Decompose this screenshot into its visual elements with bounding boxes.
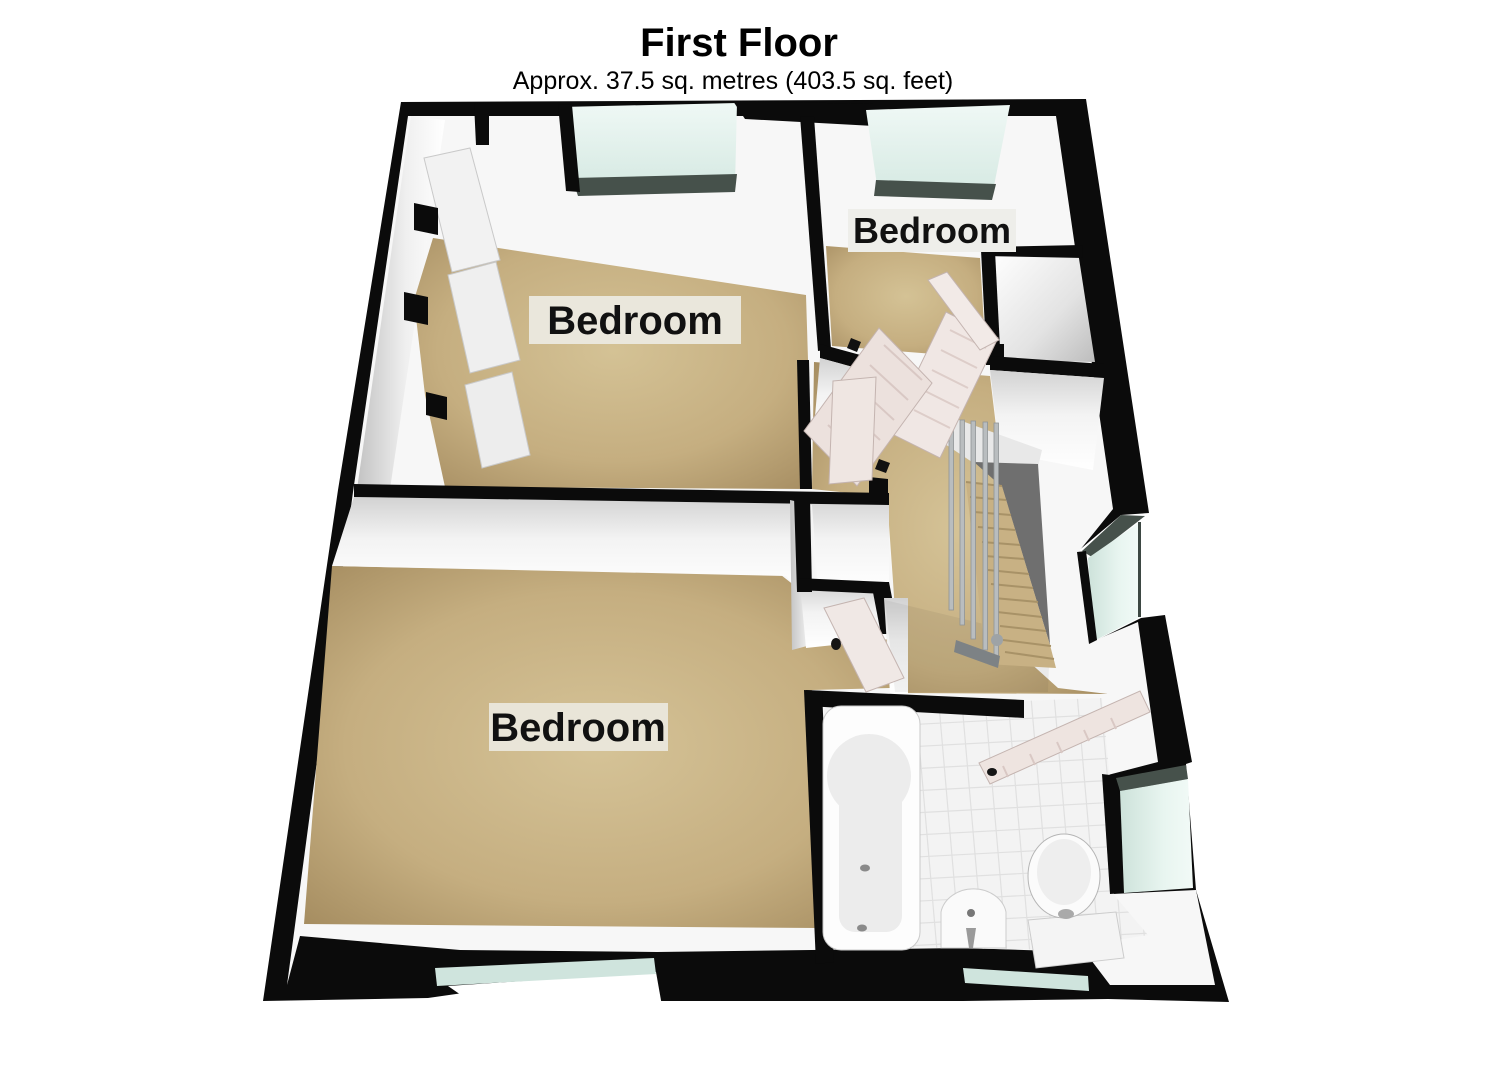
svg-text:First Floor: First Floor — [640, 21, 838, 65]
svg-text:Bedroom: Bedroom — [547, 299, 723, 343]
svg-text:Bedroom: Bedroom — [490, 706, 666, 750]
svg-text:Approx. 37.5 sq. metres (403.5: Approx. 37.5 sq. metres (403.5 sq. feet) — [513, 67, 954, 95]
svg-text:Bedroom: Bedroom — [853, 210, 1011, 251]
